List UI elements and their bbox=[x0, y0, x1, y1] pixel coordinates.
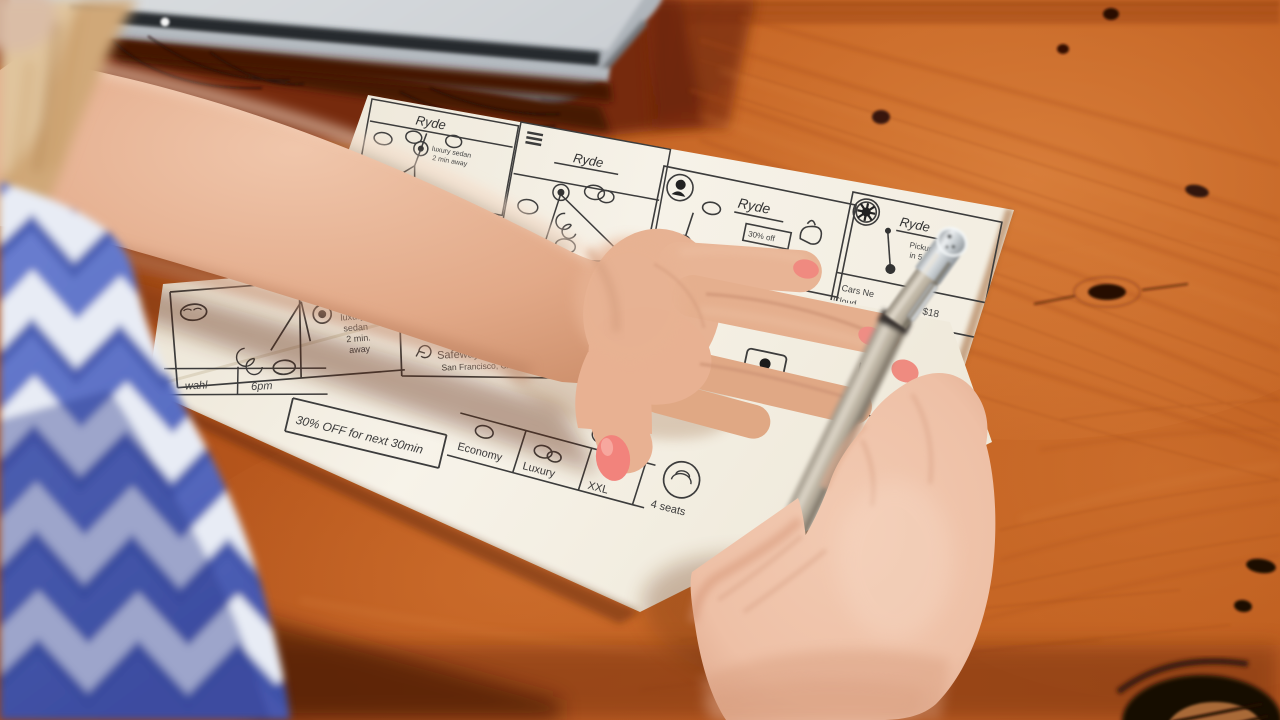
svg-text:wahl: wahl bbox=[185, 379, 209, 392]
svg-text:6pm: 6pm bbox=[251, 380, 273, 393]
